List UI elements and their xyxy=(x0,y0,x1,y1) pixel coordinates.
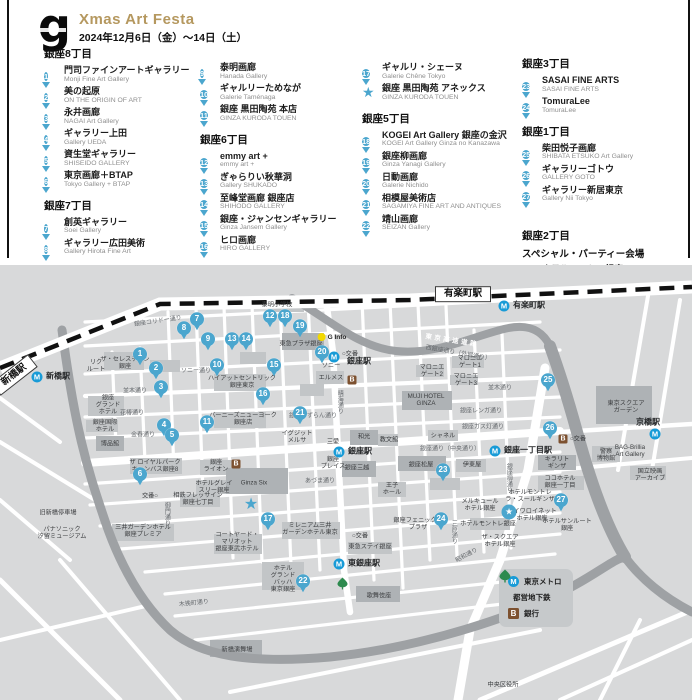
building-label: 警察博物館 xyxy=(597,449,616,463)
metro-station-icon: M xyxy=(499,301,510,312)
building-label: 中央区役所 xyxy=(488,683,519,690)
gallery-list-item: 18KOGEI Art Gallery 銀座の金沢KOGEI Art Galle… xyxy=(362,131,507,148)
gallery-name-ja: 資生堂ギャラリー xyxy=(64,150,136,160)
gallery-name-ja: ギャラリー上田 xyxy=(64,129,127,139)
building-label: 銀座国際ホテル xyxy=(93,420,118,434)
gallery-name-ja: 永井画廊 xyxy=(64,108,119,118)
map-pin-21: 21 xyxy=(293,406,307,420)
map-pin-24: 24 xyxy=(434,512,448,526)
map-pin-5: 5 xyxy=(165,428,179,442)
gallery-name-en: Ginza Yanagi Gallery xyxy=(382,161,446,169)
gallery-name-en: Gallery Nii Tokyo xyxy=(542,195,623,203)
gallery-list-item: 10ギャルリーためながGalerie Taménaga xyxy=(200,84,337,101)
gallery-list-item: 4ギャラリー上田Gallery UEDA xyxy=(44,129,189,146)
building-label: パナソニック汐留ミュージアム xyxy=(38,527,87,541)
map-pin-6: 6 xyxy=(133,467,147,481)
building-label: 銀座グランドホテル xyxy=(96,396,121,417)
map-star-marker: ★ xyxy=(244,497,258,513)
station-label: 銀座一丁目駅 xyxy=(504,447,552,456)
number-pin-icon: 17 xyxy=(362,63,376,81)
gallery-name-en: Tokyo Gallery + BTAP xyxy=(64,181,133,189)
gallery-list-item: 26ギャラリーゴトウGALLERY GOTO xyxy=(522,165,644,182)
number-pin-icon: 23 xyxy=(522,76,536,94)
header: g Xmas Art Festa 2024年12月6日（金）～14日（土） xyxy=(38,6,247,46)
gallery-name-ja: 創英ギャラリー xyxy=(64,218,127,228)
map-pin-16: 16 xyxy=(256,387,270,401)
bank-icon: B xyxy=(559,435,568,444)
map-pin-20: 20 xyxy=(315,345,329,359)
gallery-list-item: 12emmy art +emmy art + xyxy=(200,152,337,169)
building-label: ホテルモントレラ・スールギンザ xyxy=(505,490,555,504)
building-label: 銀座駅 xyxy=(347,358,371,367)
building-label: 三井ガーデンホテル銀座プレミア xyxy=(115,525,171,539)
gallery-list-item: 11銀座 黒田陶苑 本店GINZA KURODA TOUEN xyxy=(200,105,337,122)
station-label: 東銀座駅 xyxy=(348,560,380,569)
street-label: 銀座柳通り xyxy=(505,463,512,493)
map-pin-12: 12 xyxy=(263,309,277,323)
map-pin-17: 17 xyxy=(261,512,275,526)
district-heading: 銀座1丁目 xyxy=(522,124,644,139)
gallery-name-ja: 銀座 黒田陶苑 本店 xyxy=(220,105,297,115)
g-info-marker: G Info xyxy=(318,333,347,341)
building-label: 京橋駅 xyxy=(636,419,660,428)
gallery-name-en: Gallery UEDA xyxy=(64,139,127,147)
number-pin-icon: 14 xyxy=(200,194,214,212)
map-pin-1: 1 xyxy=(133,347,147,361)
number-pin-icon: 20 xyxy=(362,173,376,191)
metro-station-icon: M xyxy=(334,559,345,570)
map-base xyxy=(0,265,692,700)
gallery-name-ja: TomuraLee xyxy=(542,97,590,107)
number-pin-icon: 10 xyxy=(200,84,214,102)
building-label: 銀座ライオン xyxy=(204,460,229,474)
building-label: マロニエゲート2 xyxy=(420,365,445,379)
building-label: ホテルモントレ銀座 xyxy=(460,522,516,529)
g-info-dot xyxy=(318,333,326,341)
building-label: 旧新橋停車場 xyxy=(39,511,76,518)
directory-column-4: 銀座3丁目23SASAI FINE ARTSSASAI FINE ARTS24T… xyxy=(522,46,644,286)
gallery-name-ja: emmy art + xyxy=(220,152,268,162)
gallery-name-ja: KOGEI Art Gallery 銀座の金沢 xyxy=(382,131,507,141)
map-pin-18: 18 xyxy=(278,309,292,323)
ginza-g-logo: g xyxy=(38,6,71,46)
street-label: 並木通り xyxy=(488,386,512,393)
gallery-name-ja: 靖山画廊 xyxy=(382,215,430,225)
gallery-name-en: Galerie Chêne Tokyo xyxy=(382,73,463,81)
station-label: 有楽町駅 xyxy=(513,302,545,311)
gallery-name-en: Monji Fine Art Gallery xyxy=(64,76,189,84)
building-label: ホテルサンルート銀座 xyxy=(542,519,592,533)
map-pin-15: 15 xyxy=(267,358,281,372)
building-label: ○交番 xyxy=(352,534,368,541)
map-party-venue-marker: ★ xyxy=(502,505,517,520)
building-label: 泰明小学校 xyxy=(262,303,293,310)
ginza-area-map: 泰明小学校東急プラザ銀座ソニーエルメスリクルートザ・セレスティン銀座銀座グランド… xyxy=(0,265,692,700)
number-pin-icon: 26 xyxy=(522,165,536,183)
gallery-list-item: 14至峰堂画廊 銀座店SHIHODO GALLERY xyxy=(200,194,337,211)
gallery-name-en: Gallery SHUKADO xyxy=(220,182,292,190)
party-venue-subheading: スペシャル・パーティー会場 xyxy=(522,246,644,260)
gallery-name-en: GINZA KURODA TOUEN xyxy=(382,94,486,102)
building-label: メルキュールホテル銀座 xyxy=(461,499,498,513)
map-pin-3: 3 xyxy=(154,380,168,394)
gallery-list-item: 6東京画廊＋BTAPTokyo Gallery + BTAP xyxy=(44,171,189,188)
district-heading: 銀座2丁目 xyxy=(522,228,644,243)
gallery-name-ja: 柴田悦子画廊 xyxy=(542,144,633,154)
district-heading: 銀座5丁目 xyxy=(362,111,507,126)
building-label: 和光 xyxy=(358,435,370,442)
building-label: MUJI HOTELGINZA xyxy=(408,394,445,408)
number-pin-icon: 1 xyxy=(44,66,58,84)
gallery-list-item: 3永井画廊NAGAI Art Gallery xyxy=(44,108,189,125)
number-pin-icon: 8 xyxy=(44,239,58,257)
gallery-list-item: 21相模屋美術店SAGAMIYA FINE ART AND ANTIQUES xyxy=(362,194,507,211)
gallery-list-item: ★銀座 黒田陶苑 アネックスGINZA KURODA TOUEN xyxy=(362,84,507,101)
district-heading: 銀座3丁目 xyxy=(522,56,644,71)
number-pin-icon: 22 xyxy=(362,215,376,233)
gallery-name-en: SHIBATA ETSUKO Art Gallery xyxy=(542,153,633,161)
gallery-list-item: 22靖山画廊SEIZAN Gallery xyxy=(362,215,507,232)
star-icon: ★ xyxy=(362,84,376,102)
legend-toei-row: 都営地下鉄 xyxy=(508,592,573,603)
building-label: エルメス xyxy=(319,376,344,383)
building-label: 相鉄フレッサイン銀座七丁目 xyxy=(173,493,223,507)
map-pin-11: 11 xyxy=(200,415,214,429)
gallery-name-ja: ぎゃらりい秋華洞 xyxy=(220,173,292,183)
gallery-name-en: SEIZAN Gallery xyxy=(382,224,430,232)
building-label: ミレニアム三井ガーデンホテル東京 xyxy=(282,523,338,537)
number-pin-icon: 27 xyxy=(522,186,536,204)
gallery-name-ja: 銀座 黒田陶苑 アネックス xyxy=(382,84,486,94)
street-label: 銀座ガス灯通り xyxy=(462,425,504,432)
gallery-name-en: emmy art + xyxy=(220,161,268,169)
left-rule xyxy=(7,0,9,258)
gallery-list-item: 15銀座・ジャンセンギャラリーGinza Jansem Gallery xyxy=(200,215,337,232)
bank-icon: B xyxy=(508,608,519,619)
number-pin-icon: 9 xyxy=(200,63,214,81)
building-label: シャネル xyxy=(431,434,456,441)
gallery-name-ja: ヒロ画廊 xyxy=(220,236,270,246)
building-label: ○交番 xyxy=(570,437,586,444)
gallery-name-en: HIRO GALLERY xyxy=(220,245,270,253)
building-label: 新橋演舞場 xyxy=(222,648,253,655)
building-label: 銀座松屋 xyxy=(409,463,434,470)
map-pin-25: 25 xyxy=(541,373,555,387)
map-pin-14: 14 xyxy=(239,332,253,346)
building-label: 歌舞伎座 xyxy=(367,594,392,601)
directory-column-3: 17ギャルリ・シェーヌGalerie Chêne Tokyo★銀座 黒田陶苑 ア… xyxy=(362,46,507,236)
number-pin-icon: 21 xyxy=(362,194,376,212)
building-label: コートヤード・マリオット銀座東武ホテル xyxy=(215,533,258,554)
street-label: 晴海通り xyxy=(336,390,343,414)
legend-bank-label: 銀行 xyxy=(524,608,539,619)
street-label: 御門通り xyxy=(163,502,170,526)
directory-column-1: 銀座8丁目1門司ファインアートギャラリーMonji Fine Art Galle… xyxy=(44,46,189,260)
legend-toei-label: 都営地下鉄 xyxy=(513,592,551,603)
gallery-list-item: 25柴田悦子画廊SHIBATA ETSUKO Art Gallery xyxy=(522,144,644,161)
gallery-name-ja: 相模屋美術店 xyxy=(382,194,501,204)
number-pin-icon: 18 xyxy=(362,131,376,149)
number-pin-icon: 2 xyxy=(44,87,58,105)
gallery-name-en: SASAI FINE ARTS xyxy=(542,86,619,94)
street-label: 花椿通り xyxy=(120,411,144,418)
gallery-name-en: GALLERY GOTO xyxy=(542,174,614,182)
building-label: バーニーズニューヨーク銀座店 xyxy=(209,413,277,427)
station-label: 銀座駅 xyxy=(348,448,372,457)
street-label: 銀座通り（中央通り） xyxy=(420,447,480,454)
gallery-list-item: 8ギャラリー広田美術Gallery Hirota Fine Art xyxy=(44,239,189,256)
gallery-name-ja: ギャラリー新居東京 xyxy=(542,186,623,196)
gallery-list-item: 20日動画廊Galerie Nichido xyxy=(362,173,507,190)
building-label: キラリトギンザ xyxy=(545,457,570,471)
gallery-name-ja: 門司ファインアートギャラリー xyxy=(64,66,189,76)
gallery-name-ja: 日動画廊 xyxy=(382,173,428,183)
gallery-name-en: Galerie Nichido xyxy=(382,182,428,190)
street-label: 銀座レンガ通り xyxy=(460,409,502,416)
gallery-name-ja: ギャラリー広田美術 xyxy=(64,239,145,249)
gallery-list-item: 2美の起原ON THE ORIGIN OF ART xyxy=(44,87,189,104)
xmas-art-festa-map-page: g Xmas Art Festa 2024年12月6日（金）～14日（土） 銀座… xyxy=(0,0,692,700)
gallery-name-en: Soei Gallery xyxy=(64,227,127,235)
metro-station-icon: M xyxy=(490,446,501,457)
map-pin-26: 26 xyxy=(543,421,557,435)
number-pin-icon: 24 xyxy=(522,97,536,115)
bank-icon: B xyxy=(348,376,357,385)
building-label: BAG-BrilliaArt Gallery xyxy=(615,445,645,459)
gallery-name-en: Galerie Taménaga xyxy=(220,94,301,102)
gallery-list-item: 13ぎゃらりい秋華洞Gallery SHUKADO xyxy=(200,173,337,190)
legend-bank-row: B 銀行 xyxy=(508,608,573,619)
street-label: ソニー通り xyxy=(181,369,211,376)
map-pin-10: 10 xyxy=(210,358,224,372)
map-pin-22: 22 xyxy=(296,574,310,588)
metro-station-icon: M xyxy=(32,372,43,383)
building-label: イグジットメルサ xyxy=(282,431,313,445)
gallery-name-ja: SASAI FINE ARTS xyxy=(542,76,619,86)
building-label: ザ・スクエアホテル銀座 xyxy=(481,535,518,549)
building-label: Ginza Six xyxy=(241,481,267,488)
map-pin-27: 27 xyxy=(554,493,568,507)
gallery-name-en: Hanada Gallery xyxy=(220,73,267,81)
gallery-name-en: NAGAI Art Gallery xyxy=(64,118,119,126)
number-pin-icon: 7 xyxy=(44,218,58,236)
gallery-list-item: 7創英ギャラリーSoei Gallery xyxy=(44,218,189,235)
legend-metro-row: M 東京メトロ xyxy=(508,576,573,587)
event-title: Xmas Art Festa xyxy=(79,11,247,28)
map-pin-19: 19 xyxy=(293,319,307,333)
station-label: 新橋駅 xyxy=(46,373,70,382)
gallery-name-ja: 東京画廊＋BTAP xyxy=(64,171,133,181)
gallery-name-en: Gallery Hirota Fine Art xyxy=(64,248,145,256)
metro-station-icon: M xyxy=(334,447,345,458)
number-pin-icon: 19 xyxy=(362,152,376,170)
gallery-name-ja: 美の起原 xyxy=(64,87,142,97)
street-label: あづま通り xyxy=(305,479,335,486)
number-pin-icon: 15 xyxy=(200,215,214,233)
building-label: 三愛 xyxy=(327,440,339,447)
district-heading: 銀座7丁目 xyxy=(44,198,189,213)
gallery-name-en: SAGAMIYA FINE ART AND ANTIQUES xyxy=(382,203,501,211)
gallery-name-ja: ギャルリ・シェーヌ xyxy=(382,63,463,73)
gallery-name-ja: 銀座・ジャンセンギャラリー xyxy=(220,215,337,225)
gallery-directory-section: g Xmas Art Festa 2024年12月6日（金）～14日（土） 銀座… xyxy=(0,0,692,265)
gallery-name-ja: 至峰堂画廊 銀座店 xyxy=(220,194,295,204)
metro-station-icon: M xyxy=(650,429,661,440)
number-pin-icon: 11 xyxy=(200,105,214,123)
gallery-name-en: ON THE ORIGIN OF ART xyxy=(64,97,142,105)
gallery-name-en: KOGEI Art Gallery Ginza no Kanazawa xyxy=(382,140,507,148)
map-pin-9: 9 xyxy=(201,332,215,346)
number-pin-icon: 4 xyxy=(44,129,58,147)
map-pin-23: 23 xyxy=(436,463,450,477)
street-label: 金春通り xyxy=(131,433,155,440)
gallery-list-item: 9泰明画廊Hanada Gallery xyxy=(200,63,337,80)
gallery-list-item: 17ギャルリ・シェーヌGalerie Chêne Tokyo xyxy=(362,63,507,80)
map-pin-13: 13 xyxy=(225,332,239,346)
map-pin-2: 2 xyxy=(149,361,163,375)
gallery-name-ja: ギャラリーゴトウ xyxy=(542,165,614,175)
directory-column-2: 9泰明画廊Hanada Gallery10ギャルリーためながGalerie Ta… xyxy=(200,46,337,257)
gallery-list-item: 1門司ファインアートギャラリーMonji Fine Art Gallery xyxy=(44,66,189,83)
district-heading: 銀座8丁目 xyxy=(44,46,189,61)
number-pin-icon: 16 xyxy=(200,236,214,254)
gallery-name-en: Ginza Jansem Gallery xyxy=(220,224,337,232)
building-label: 交番○ xyxy=(142,494,158,501)
gallery-list-item: 16ヒロ画廊HIRO GALLERY xyxy=(200,236,337,253)
right-rule xyxy=(688,0,690,258)
building-label: ホテルグランドバッハ東京銀座 xyxy=(271,566,296,594)
number-pin-icon: 3 xyxy=(44,108,58,126)
gallery-list-item: 24TomuraLeeTomuraLee xyxy=(522,97,644,114)
event-dates: 2024年12月6日（金）～14日（土） xyxy=(79,30,247,45)
gallery-list-item: 27ギャラリー新居東京Gallery Nii Tokyo xyxy=(522,186,644,203)
number-pin-icon: 5 xyxy=(44,150,58,168)
jr-station-box: 有楽町駅 xyxy=(435,286,491,302)
gallery-name-en: GINZA KURODA TOUEN xyxy=(220,115,297,123)
building-label: 教文館 xyxy=(380,438,399,445)
building-label: 伊東屋 xyxy=(463,463,482,470)
building-label: マロニエゲート3 xyxy=(454,374,479,388)
number-pin-icon: 13 xyxy=(200,173,214,191)
gallery-name-ja: ギャルリーためなが xyxy=(220,84,301,94)
building-label: ココホテル銀座一丁目 xyxy=(545,476,576,490)
building-label: 東急ステイ銀座 xyxy=(348,545,391,552)
street-label: 並木通り xyxy=(123,389,147,396)
number-pin-icon: 6 xyxy=(44,171,58,189)
district-heading: 銀座6丁目 xyxy=(200,132,337,147)
gallery-name-ja: 泰明画廊 xyxy=(220,63,267,73)
building-label: 国立映画アーカイブ xyxy=(635,469,666,483)
gallery-name-en: TomuraLee xyxy=(542,107,590,115)
building-label: 博品館 xyxy=(101,442,120,449)
map-pin-8: 8 xyxy=(177,321,191,335)
legend-metro-label: 東京メトロ xyxy=(524,576,562,587)
map-legend: M 東京メトロ 都営地下鉄 B 銀行 xyxy=(499,569,573,627)
building-label: 東京スクエアガーデン xyxy=(607,401,644,415)
number-pin-icon: 25 xyxy=(522,144,536,162)
gallery-name-en: SHISEIDO GALLERY xyxy=(64,160,136,168)
number-pin-icon: 12 xyxy=(200,152,214,170)
map-pin-7: 7 xyxy=(190,312,204,326)
gallery-list-item: 5資生堂ギャラリーSHISEIDO GALLERY xyxy=(44,150,189,167)
building-label: 王子ホール xyxy=(383,483,402,497)
bank-icon: B xyxy=(232,460,241,469)
building-label: 銀座三越 xyxy=(345,466,370,473)
building-label: 銀座プレイス xyxy=(321,457,346,471)
gallery-name-ja: 銀座柳画廊 xyxy=(382,152,446,162)
gallery-list-item: 19銀座柳画廊Ginza Yanagi Gallery xyxy=(362,152,507,169)
metro-station-icon: M xyxy=(329,352,340,363)
gallery-list-item: 23SASAI FINE ARTSSASAI FINE ARTS xyxy=(522,76,644,93)
street-label: 三原通り xyxy=(450,520,457,544)
gallery-name-en: SHIHODO GALLERY xyxy=(220,203,295,211)
